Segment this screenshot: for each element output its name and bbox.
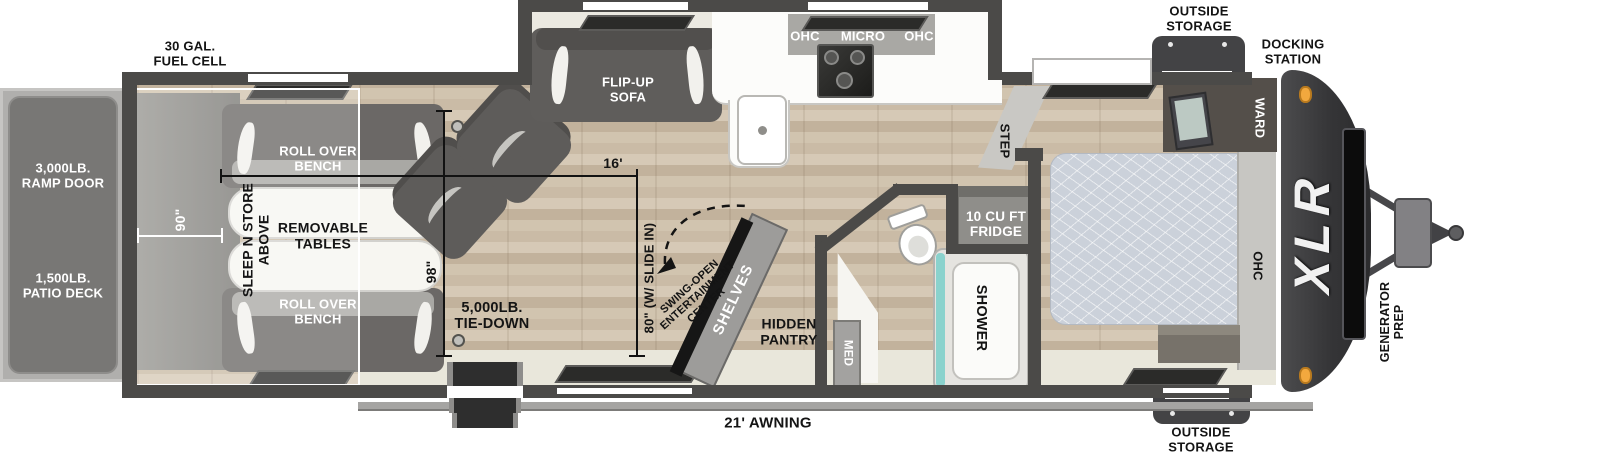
wall-top-front xyxy=(1150,72,1252,85)
burner-3 xyxy=(836,72,853,89)
marker-light-bottom xyxy=(1299,367,1312,384)
wall-bedroom xyxy=(1028,148,1041,385)
window-bottom-bedroom xyxy=(1163,388,1229,393)
step-label: STEP xyxy=(997,124,1012,159)
dim-90-line xyxy=(138,235,222,237)
bedroom-front-window xyxy=(1032,58,1152,85)
dim-90-label: 90" xyxy=(173,209,189,232)
bedroom-floor-window-top xyxy=(1042,83,1158,99)
window-garage-top xyxy=(248,74,348,82)
tie-down-anchor-rear xyxy=(452,334,465,347)
ramp-door-label: 3,000LB. RAMP DOOR xyxy=(22,161,104,190)
wall-slide-right xyxy=(988,0,1002,80)
wall-bath-left xyxy=(815,235,827,385)
fridge-label: 10 CU FT FRIDGE xyxy=(966,209,1026,239)
ohc-left-label: OHC xyxy=(790,30,820,45)
ramp-door-panel xyxy=(8,96,118,374)
bedroom-floor-window-bottom xyxy=(1122,368,1227,386)
med-label: MED xyxy=(841,340,854,366)
shower-label: SHOWER xyxy=(973,285,989,351)
window-slide-left xyxy=(583,2,688,10)
wall-bedroom-stub xyxy=(1015,148,1043,161)
burner-1 xyxy=(824,50,839,65)
ward-label: WARD xyxy=(1252,98,1267,139)
window-slide-right xyxy=(808,2,928,10)
entry-step-1 xyxy=(449,398,521,413)
docking-station-label: DOCKING STATION xyxy=(1262,37,1325,66)
sofa-vent xyxy=(578,15,695,31)
dim-90-tick-right xyxy=(221,228,223,243)
dim-98-label: 98" xyxy=(424,261,440,284)
burner-2 xyxy=(850,50,865,65)
wall-bottom-rear xyxy=(122,385,447,398)
wall-slide-left xyxy=(518,0,532,80)
roll-over-bench-top-label: ROLL OVER BENCH xyxy=(279,144,356,173)
swing-open-arc xyxy=(635,172,765,277)
dim-80-tick-bottom xyxy=(629,355,645,357)
entry-landing xyxy=(447,362,523,386)
ohc-right-label: OHC xyxy=(904,30,934,45)
wall-top-mid xyxy=(1002,72,1034,85)
storage-screw-bl xyxy=(1170,411,1175,416)
sink-faucet xyxy=(758,126,767,135)
generator-prep-bay xyxy=(1342,128,1366,340)
wardrobe-tv-screen xyxy=(1174,97,1207,141)
patio-deck-label: 1,500LB. PATIO DECK xyxy=(23,271,103,300)
shower-glass-teal xyxy=(936,253,945,387)
outside-storage-top-label: OUTSIDE STORAGE xyxy=(1166,4,1231,33)
bed xyxy=(1050,153,1240,325)
dim-16-label: 16' xyxy=(603,156,623,172)
removable-tables-label: REMOVABLE TABLES xyxy=(278,220,368,251)
tie-down-anchor-front xyxy=(451,120,464,133)
sleep-n-store-label: SLEEP N STORE ABOVE xyxy=(240,183,271,297)
marker-light-top xyxy=(1299,86,1312,103)
wall-fridge-left xyxy=(946,184,958,252)
wall-left xyxy=(122,72,137,398)
propane-box xyxy=(1394,198,1432,268)
dim-16-line xyxy=(221,175,637,177)
dim-98-tick-bottom xyxy=(436,355,452,357)
storage-screw-right xyxy=(1222,42,1227,47)
brand-logo: XLR xyxy=(1284,165,1340,300)
nightstand-top xyxy=(1158,325,1240,335)
roll-over-bench-bottom-label: ROLL OVER BENCH xyxy=(279,297,356,326)
fuel-cell-label: 30 GAL. FUEL CELL xyxy=(153,39,226,68)
storage-screw-left xyxy=(1168,42,1173,47)
coupler-ball xyxy=(1448,225,1464,241)
dim-98-line xyxy=(443,111,445,357)
outside-storage-bottom-label: OUTSIDE STORAGE xyxy=(1168,425,1233,454)
storage-screw-br xyxy=(1229,411,1234,416)
window-bottom-living xyxy=(557,388,692,394)
dim-90-tick-left xyxy=(137,228,139,243)
generator-prep-label: GENERATOR PREP xyxy=(1378,282,1406,363)
hidden-pantry-label: HIDDEN PANTRY xyxy=(760,316,817,347)
xlr-floorplan: 3,000LB. RAMP DOOR 1,500LB. PATIO DECK O… xyxy=(0,0,1600,454)
dim-16-tick-left xyxy=(220,169,222,183)
micro-label: MICRO xyxy=(841,30,885,45)
wall-fridge-bottom xyxy=(946,244,1038,254)
bed-ohc-label: OHC xyxy=(1250,251,1265,281)
dim-98-tick-top xyxy=(436,110,452,112)
tie-down-label: 5,000LB. TIE-DOWN xyxy=(455,300,530,332)
fridge-top-band xyxy=(959,188,1033,197)
entry-step-2 xyxy=(452,413,518,428)
flip-up-sofa-label: FLIP-UP SOFA xyxy=(602,75,654,104)
awning-label: 21' AWNING xyxy=(724,416,812,433)
